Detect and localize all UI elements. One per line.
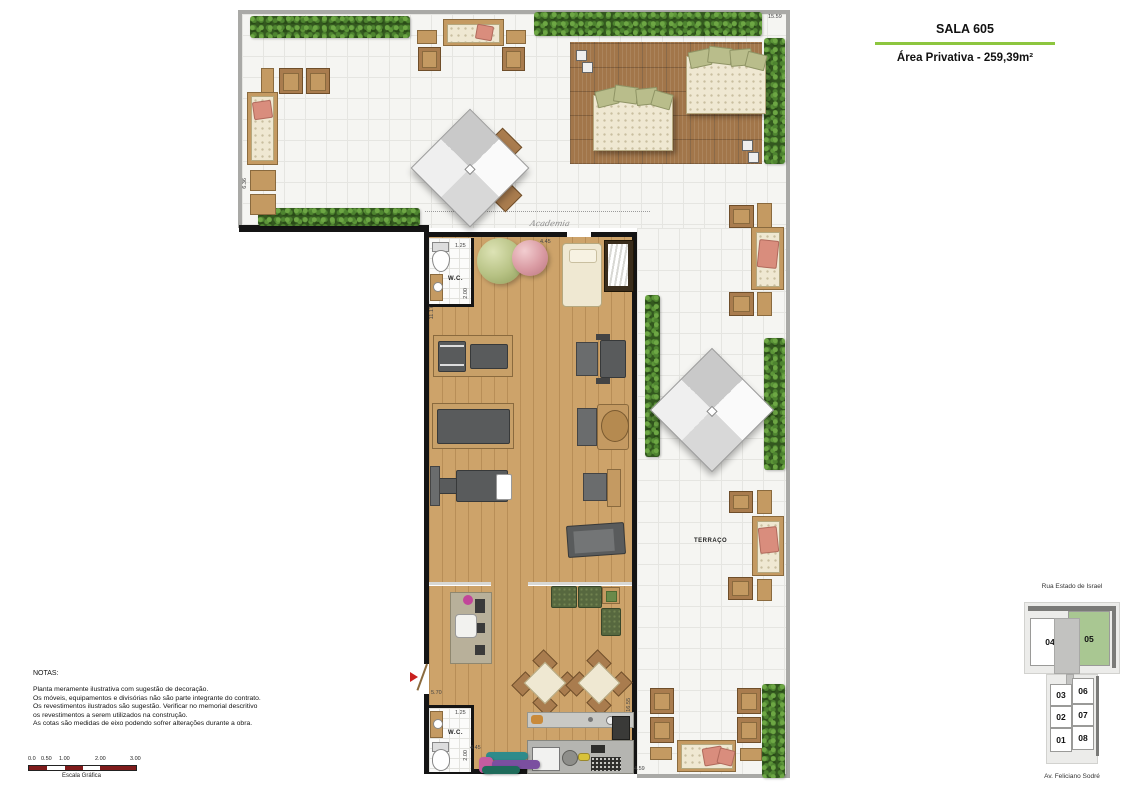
outdoor-chair (306, 68, 330, 94)
map-street-edge-lower-right (1096, 676, 1099, 756)
notes-line: Os móveis, equipamentos e divisórias não… (33, 695, 323, 704)
deck-light-icon (742, 140, 753, 151)
map-unit-07: 07 (1072, 704, 1094, 726)
side-table (757, 490, 772, 514)
gym-round-seat-machine (577, 404, 627, 450)
dish-rack (591, 757, 621, 771)
side-table (757, 203, 772, 228)
terrace-armchair (737, 688, 761, 714)
fruit-bowl-icon (531, 715, 543, 724)
map-street-edge-right (1112, 606, 1116, 668)
terrace-label: TERRAÇO (694, 538, 727, 544)
terrace-armchair (737, 717, 761, 743)
planter-hedge-top-right (534, 12, 762, 36)
scale-bar-block: 0.0 0.50 1.00 2.00 3.00 Escala Gráfica (28, 756, 148, 786)
kitchen-counter (527, 740, 634, 774)
side-table (261, 68, 274, 93)
sink-cabinet (430, 711, 443, 738)
dining-set (574, 658, 626, 710)
gym-seated-machine (576, 338, 628, 380)
terrace-armchair (650, 717, 674, 743)
wall-terrace-left-bottom (239, 225, 429, 232)
side-table (757, 579, 772, 601)
outdoor-sofa-top (443, 19, 504, 46)
page-title: SALA 605 (870, 22, 1060, 36)
glass-partition (429, 582, 491, 585)
outer-wall-right (786, 10, 790, 778)
planter-hedge-terrace-inner (645, 295, 660, 457)
terrace-sofa-vertical (752, 516, 784, 576)
dim-wc1-width: 1.25 (455, 243, 466, 249)
planter-hedge-terrace-bottom (762, 684, 785, 778)
key-map-graphic: 05 04 06 03 02 07 01 08 (1024, 596, 1120, 768)
side-table (250, 194, 276, 215)
notes-block: NOTAS: Planta meramente ilustrativa com … (33, 670, 323, 729)
side-table (506, 30, 526, 44)
deck-light-icon (582, 62, 593, 73)
scale-bar (28, 765, 137, 771)
sink-cabinet (430, 274, 443, 301)
map-unit-02: 02 (1050, 706, 1072, 728)
wall-room-right (632, 232, 637, 774)
side-table (650, 747, 672, 760)
map-unit-03: 03 (1050, 684, 1072, 706)
terrace-sofa-vertical (751, 227, 784, 290)
deck-light-icon (748, 152, 759, 163)
planter-hedge-left-bottom (258, 208, 420, 226)
floor-plan-page: TERRAÇO W.C. 1.25 2.00 (0, 0, 1130, 798)
yoga-mat (482, 766, 520, 774)
side-table (757, 292, 772, 316)
side-table (740, 748, 762, 761)
terrace-armchair (728, 577, 753, 600)
terrace-armchair (729, 205, 754, 228)
dim-left-height: 6.36 (242, 178, 248, 189)
map-core (1054, 618, 1080, 674)
wc2-label: W.C. (448, 730, 463, 736)
dining-set (520, 658, 572, 710)
daybed (593, 95, 673, 151)
planter-hedge-top-left (250, 16, 410, 38)
gym-chair-machine (581, 469, 621, 507)
decor-signature: Academia (529, 219, 571, 228)
terrace-armchair (729, 292, 754, 316)
dim-right-wall: 16.55 (626, 698, 632, 712)
terrace-sofa-bottom (677, 740, 736, 772)
dim-entry: 5.70 (431, 690, 442, 696)
treadmill (566, 522, 626, 558)
lounge-armchair (578, 586, 602, 608)
deck-light-icon (576, 50, 587, 61)
appliance (612, 716, 630, 740)
cooktop-burner-icon (562, 750, 578, 766)
dim-room-top: 4.45 (540, 239, 551, 245)
flower-vase (463, 595, 473, 605)
outdoor-armchair (418, 47, 441, 71)
key-map: Rua Estado de Israel 05 04 06 03 02 07 0… (1022, 583, 1122, 793)
daybed (686, 56, 766, 114)
lounge-armchair (551, 586, 577, 608)
area-subtitle: Área Privativa - 259,39m² (870, 52, 1060, 64)
entry-arrow-icon (410, 672, 418, 682)
notes-line: Planta meramente ilustrativa com sugestã… (33, 686, 323, 695)
side-table (250, 170, 276, 191)
map-unit-06: 06 (1072, 678, 1094, 704)
wall-room-top-right (591, 232, 637, 237)
notes-line: As cotas são medidas de eixo podendo sof… (33, 720, 323, 729)
glass-partition (528, 582, 632, 585)
desk-chair (455, 614, 477, 638)
street-bottom-label: Av. Feliciano Sodré (1022, 773, 1122, 780)
gym-flat-bench (432, 403, 514, 449)
outdoor-chair (279, 68, 303, 94)
dim-bottom-right: 4.59 (634, 766, 645, 772)
notes-line: os revestimentos a serem utilizados na c… (33, 712, 323, 721)
towel-cabinet (604, 240, 634, 292)
street-top-label: Rua Estado de Israel (1022, 583, 1122, 590)
massage-table (562, 243, 602, 307)
scale-tick: 1.00 (59, 756, 70, 762)
map-unit-08: 08 (1072, 726, 1094, 750)
toilet-icon (432, 749, 450, 771)
terrace-armchair (650, 688, 674, 714)
scale-tick: 2.00 (95, 756, 106, 762)
gym-adjustable-bench (434, 464, 514, 508)
title-rule (875, 42, 1055, 45)
dim-left-wall: 11.17 (429, 306, 435, 319)
dim-top-width: 15.59 (768, 14, 782, 20)
wall-room-top (424, 232, 567, 237)
header: SALA 605 Área Privativa - 259,39m² (870, 22, 1060, 64)
gym-bench-press (433, 335, 513, 377)
scale-tick: 3.00 (130, 756, 141, 762)
terrace-armchair (729, 491, 753, 513)
notes-line: Os revestimentos ilustrados são sugestão… (33, 703, 323, 712)
outdoor-armchair (502, 47, 525, 71)
exercise-ball-pink (512, 240, 548, 276)
dim-room-bottom: 4.45 (470, 745, 481, 751)
notes-heading: NOTAS: (33, 670, 323, 677)
lounge-table (602, 587, 620, 604)
outer-wall-left (238, 10, 242, 228)
map-unit-01: 01 (1050, 728, 1072, 752)
scale-caption: Escala Gráfica (28, 773, 135, 779)
toilet-icon (432, 250, 450, 272)
wc2-floor (429, 705, 474, 772)
scale-tick: 0.50 (41, 756, 52, 762)
wc1-label: W.C. (448, 276, 463, 282)
dim-wc2-height: 2.00 (463, 750, 469, 761)
dim-wc1-height: 2.00 (463, 288, 469, 299)
lounge-armchair (601, 608, 621, 636)
side-table (417, 30, 437, 44)
outdoor-sofa-left (247, 92, 278, 165)
scale-tick: 0.0 (28, 756, 36, 762)
dim-wc2-width: 1.25 (455, 710, 466, 716)
